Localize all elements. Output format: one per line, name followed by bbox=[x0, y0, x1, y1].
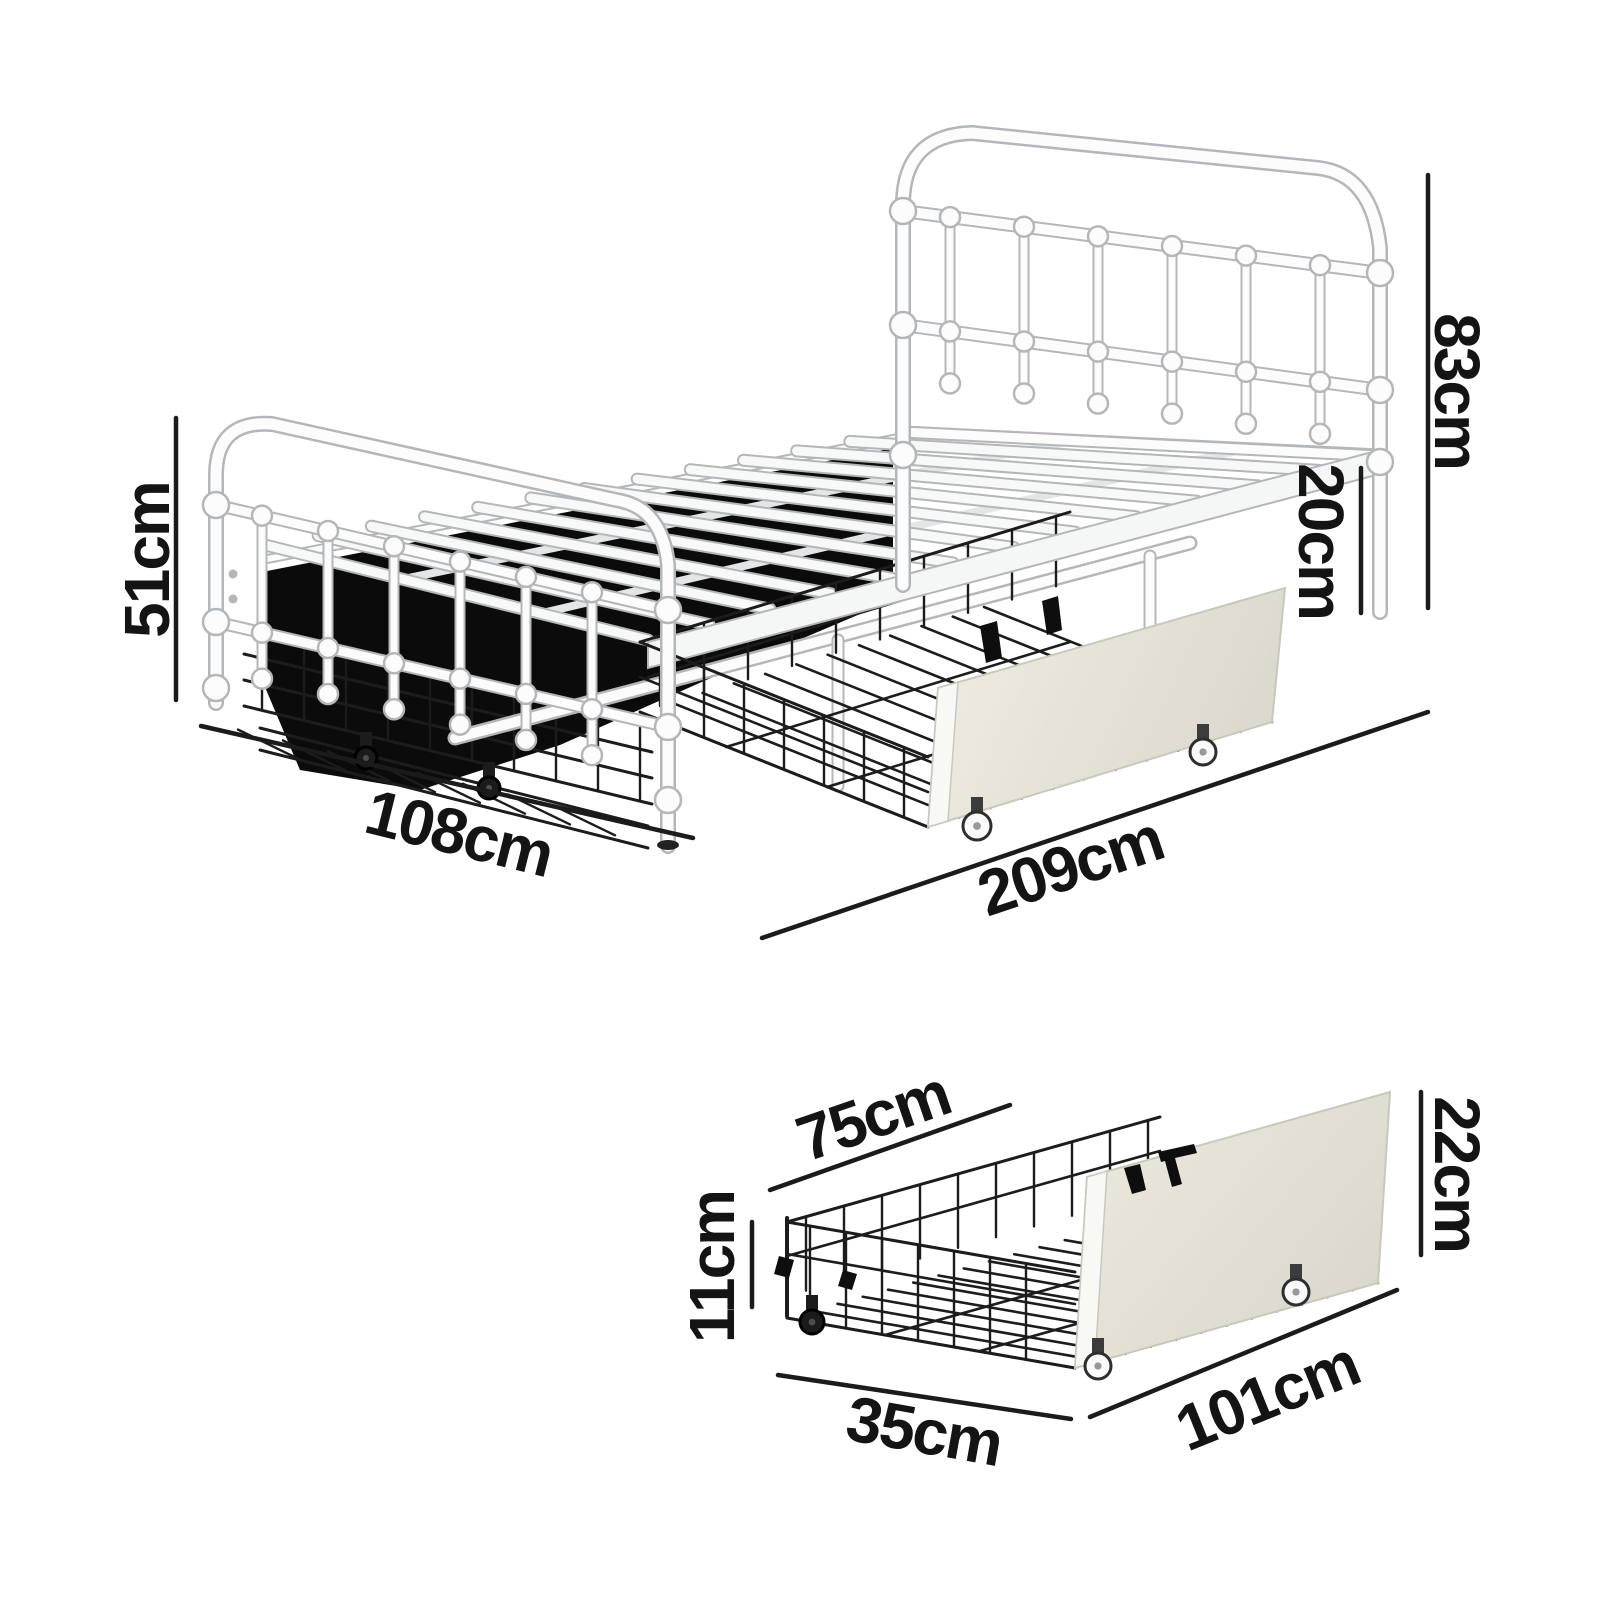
headboard-height-label: 83cm bbox=[1421, 313, 1493, 469]
detail-drawer-front-panel bbox=[1075, 1092, 1390, 1368]
bed-length-label: 209cm bbox=[969, 802, 1171, 930]
drawer-bottom-width-label: 35cm bbox=[841, 1382, 1007, 1480]
bed-dimension-diagram: 51cm 108cm 83cm 20cm 209cm 75cm 11cm 22c… bbox=[0, 0, 1600, 1600]
footboard-height-label: 51cm bbox=[111, 482, 183, 638]
drawer-front-width-label: 101cm bbox=[1166, 1327, 1368, 1465]
pulled-drawer-front-panel bbox=[928, 588, 1285, 827]
pulled-drawer-hooks bbox=[980, 596, 1062, 663]
diagram-canvas: 51cm 108cm 83cm 20cm 209cm 75cm 11cm 22c… bbox=[0, 0, 1600, 1600]
drawer-depth-label: 75cm bbox=[788, 1057, 959, 1176]
basket-height-label: 11cm bbox=[676, 1191, 748, 1343]
clearance-label: 20cm bbox=[1285, 463, 1357, 619]
drawer-front-height-label: 22cm bbox=[1421, 1096, 1493, 1252]
